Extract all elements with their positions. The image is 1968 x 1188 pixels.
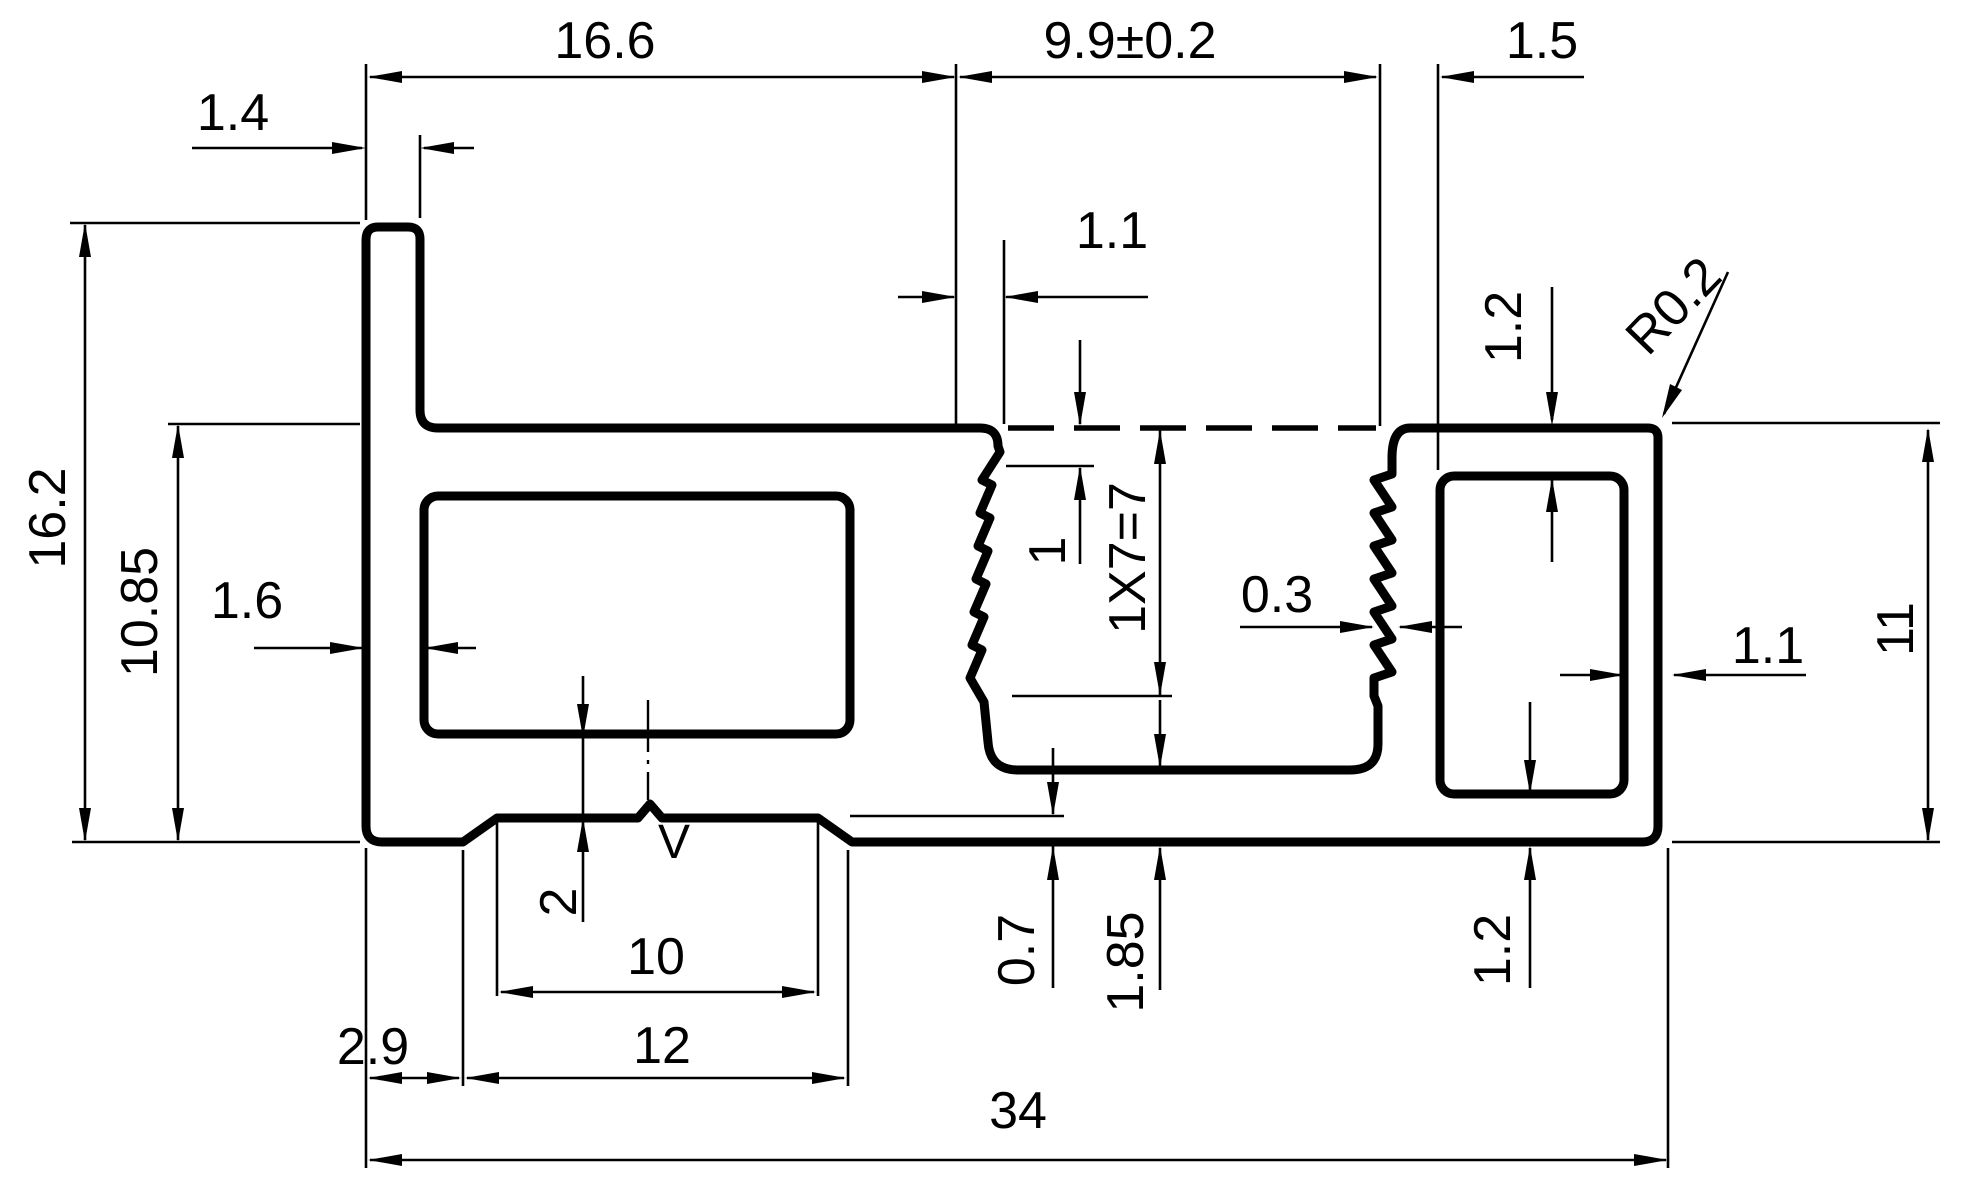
right-cavity (1440, 476, 1624, 794)
dim-label-overall-height: 16.2 (19, 467, 77, 568)
dim-label-channel-floor: 1.85 (1097, 911, 1155, 1012)
left-cavity (424, 496, 850, 734)
engineering-drawing-canvas: 1.4 16.6 9.9±0.2 1.5 1.1 1.2 R0.2 16.2 1… (0, 0, 1968, 1188)
dim-label-top-wall-right: 1.2 (1475, 291, 1533, 363)
dim-label-right-wall: 1.1 (1732, 617, 1804, 675)
surface-mark-v: V (658, 816, 690, 869)
profile-outline (366, 227, 1658, 842)
dim-label-bottom-wall-left: 2 (530, 888, 588, 917)
dim-label-rib-offset: 1.5 (1506, 12, 1578, 70)
dim-label-serration-formula: 1X7=7 (1099, 482, 1157, 634)
dim-label-foot-span: 12 (633, 1017, 691, 1075)
dim-label-flange-span: 16.6 (554, 12, 655, 70)
dim-label-serration-depth: 0.3 (1241, 566, 1313, 624)
dim-label-lip-thickness: 1.1 (1076, 202, 1148, 260)
dim-label-overall-width: 34 (989, 1082, 1047, 1140)
dim-label-recess-step: 0.7 (988, 914, 1046, 986)
dim-label-body-height: 10.85 (111, 547, 169, 677)
dim-label-left-foot: 2.9 (337, 1018, 409, 1076)
dim-label-right-height: 11 (1867, 602, 1925, 656)
dimension-lines (85, 77, 1928, 1160)
dim-label-left-wall: 1.6 (211, 572, 283, 630)
dim-label-recess-width: 10 (627, 928, 685, 986)
dim-label-channel-span: 9.9±0.2 (1043, 12, 1216, 70)
dim-label-tab-thickness: 1.4 (197, 84, 269, 142)
profile-geometry (366, 227, 1658, 842)
dim-label-corner-radius: R0.2 (1615, 247, 1733, 366)
dim-label-serration-pitch: 1 (1019, 537, 1077, 566)
dim-label-bottom-wall-right: 1.2 (1464, 914, 1522, 986)
dimension-labels: 1.4 16.6 9.9±0.2 1.5 1.1 1.2 R0.2 16.2 1… (19, 12, 1925, 1140)
drawing-sheet: 1.4 16.6 9.9±0.2 1.5 1.1 1.2 R0.2 16.2 1… (0, 0, 1968, 1188)
